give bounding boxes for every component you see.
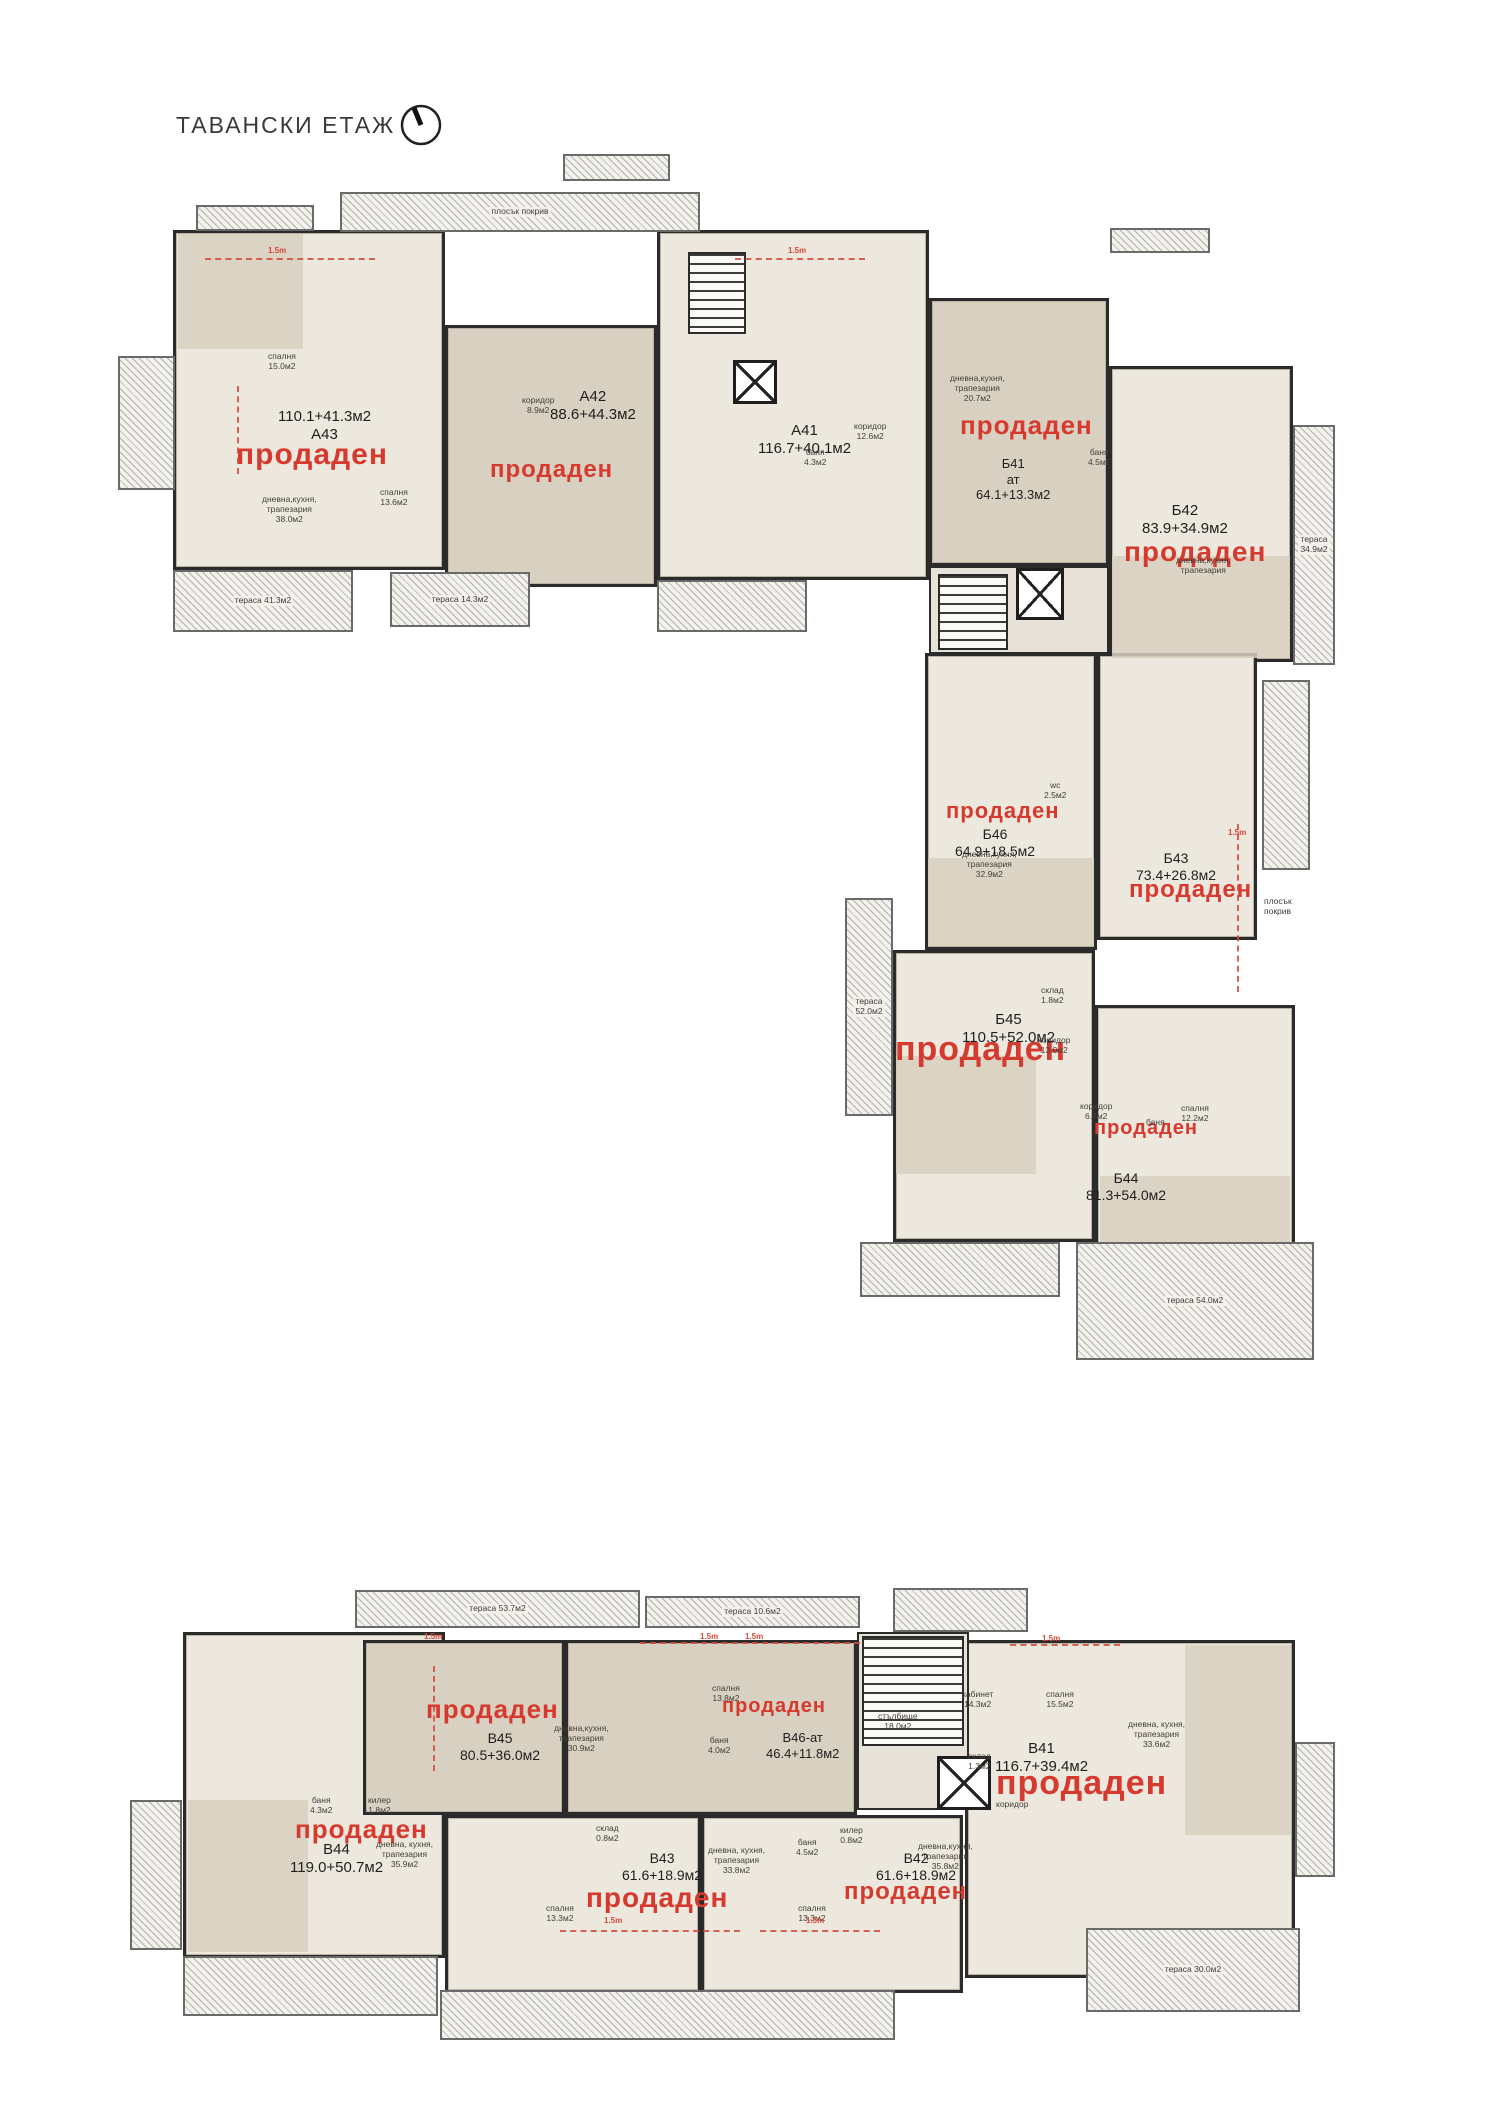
height-dash-line (560, 1930, 740, 1932)
terrace-label: тераса 53.7м2 (467, 1604, 527, 1614)
apartment-unit (363, 1640, 565, 1815)
room-shading (1185, 1645, 1291, 1835)
sold-badge: продаден (586, 1884, 728, 1912)
flat-roof-strip (1295, 1742, 1335, 1877)
sold-badge: продаден (426, 1696, 559, 1722)
height-dash-line (433, 1666, 435, 1771)
height-marker: 1.5m (806, 1916, 824, 1925)
height-marker: 1.5m (745, 1632, 763, 1641)
room-label: дневна,кухня, трапезария 35.8м2 (918, 1842, 973, 1871)
floorplan-canvas: ТАВАНСКИ ЕТАЖ плосък покривтераса 41.3м2… (0, 0, 1500, 2122)
room-label: баня 4.3м2 (310, 1796, 332, 1816)
apartment-unit (565, 1640, 857, 1815)
room-label: кабинет 14.3м2 (962, 1690, 993, 1710)
room-label: стълбище 18.0м2 (878, 1712, 918, 1732)
room-label: коридор (996, 1800, 1028, 1810)
sold-badge: продаден (844, 1880, 967, 1904)
unit-label: В44 119.0+50.7м2 (290, 1841, 383, 1877)
height-marker: 1.5m (1042, 1634, 1060, 1643)
terrace-label: тераса 30.0м2 (1163, 1965, 1223, 1975)
lower-floor-plan: тераса 53.7м2тераса 10.6м2тераса 30.0м2В… (0, 0, 1500, 2122)
terrace-label: тераса 10.6м2 (722, 1607, 782, 1617)
room-label: склад 1.3м2 (968, 1752, 991, 1772)
room-label: дневна,кухня, трапезария 30.9м2 (554, 1724, 609, 1753)
terrace: тераса 10.6м2 (645, 1596, 860, 1628)
room-label: спалня 15.5м2 (1046, 1690, 1074, 1710)
room-label: дневна, кухня, трапезария 33.8м2 (708, 1846, 765, 1875)
room-label: спалня 13.3м2 (546, 1904, 574, 1924)
room-label: дневна, кухня, трапезария 33.6м2 (1128, 1720, 1185, 1749)
flat-roof-strip (893, 1588, 1028, 1632)
sold-badge: продаден (996, 1766, 1167, 1800)
height-marker: 1.5m (700, 1632, 718, 1641)
height-marker: 1.5m (424, 1632, 442, 1641)
height-dash-line (1010, 1644, 1120, 1646)
room-label: килер 1.8м2 (368, 1796, 391, 1816)
room-label: склад 0.8м2 (596, 1824, 619, 1844)
flat-roof-strip (183, 1956, 438, 2016)
terrace: тераса 30.0м2 (1086, 1928, 1300, 2012)
room-label: баня 4.0м2 (708, 1736, 730, 1756)
unit-label: В46-ат 46.4+11.8м2 (766, 1730, 839, 1761)
flat-roof-strip (130, 1800, 182, 1950)
room-label: баня 4.5м2 (796, 1838, 818, 1858)
height-dash-line (640, 1642, 860, 1644)
unit-label: В43 61.6+18.9м2 (622, 1850, 702, 1884)
flat-roof-strip (440, 1990, 895, 2040)
height-marker: 1.5m (604, 1916, 622, 1925)
terrace: тераса 53.7м2 (355, 1590, 640, 1628)
room-label: спалня 13.8м2 (712, 1684, 740, 1704)
room-label: килер 0.8м2 (840, 1826, 863, 1846)
height-dash-line (760, 1930, 880, 1932)
room-label: дневна, кухня, трапезария 35.9м2 (376, 1840, 433, 1869)
unit-label: В45 80.5+36.0м2 (460, 1730, 540, 1764)
